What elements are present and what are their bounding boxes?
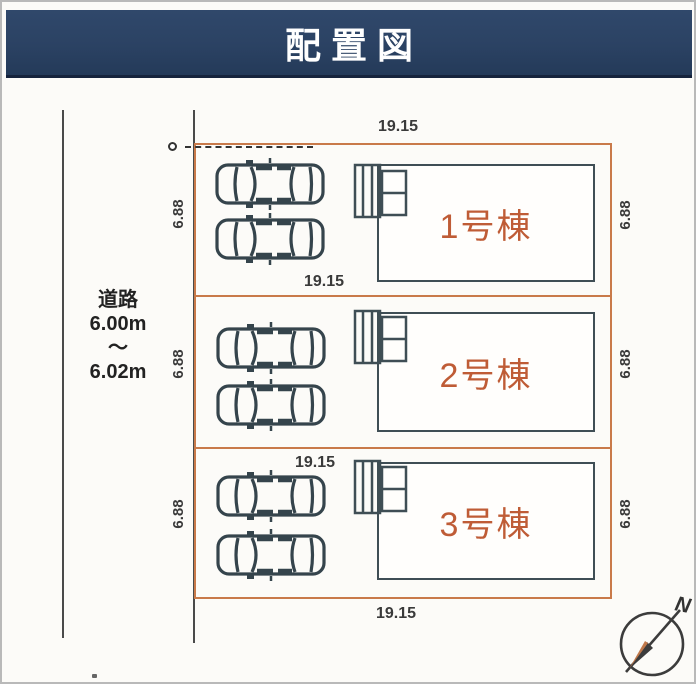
- dimension-lot2-depth-right: 6.88: [617, 341, 635, 387]
- dimension-mid-width: 19.15: [290, 273, 358, 291]
- dimension-lot3-width: 19.15: [281, 454, 349, 472]
- dimension-bottom-width: 19.15: [362, 605, 430, 623]
- entrance-porch-icon: [353, 459, 409, 517]
- car-icon: [215, 322, 327, 374]
- page-title: 配置図: [275, 17, 423, 69]
- building-3: 3号棟: [377, 462, 595, 580]
- dimension-lot2-depth-left: 6.88: [170, 341, 188, 387]
- dimension-lot3-depth-right: 6.88: [617, 491, 635, 537]
- road-width-min: 6.00m: [72, 312, 164, 336]
- compass-north-icon: N: [612, 596, 696, 682]
- car-icon: [215, 470, 327, 522]
- survey-tie-dashed-line: [185, 146, 313, 148]
- site-plan: 配置図 道路 6.00m 〜 6.02m 1号棟 2号棟 3号棟: [0, 0, 696, 684]
- building-1-label: 1号棟: [440, 199, 533, 248]
- car-icon: [215, 379, 327, 431]
- lot2-lot3-boundary: [194, 447, 612, 449]
- building-2-label: 2号棟: [440, 348, 533, 397]
- car-icon: [215, 529, 327, 581]
- dimension-lot3-depth-left: 6.88: [170, 491, 188, 537]
- car-icon: [214, 213, 326, 265]
- road-west-boundary-line: [62, 110, 64, 638]
- compass-north-label: N: [673, 596, 693, 618]
- dimension-lot1-depth-left: 6.88: [170, 191, 188, 237]
- road-width-label: 道路 6.00m 〜 6.02m: [72, 288, 164, 384]
- car-icon: [214, 158, 326, 210]
- entrance-porch-icon: [353, 309, 409, 367]
- building-3-label: 3号棟: [440, 497, 533, 546]
- title-bar: 配置図: [6, 10, 692, 78]
- survey-marker-icon: [168, 142, 177, 151]
- lot1-lot2-boundary: [194, 295, 612, 297]
- dimension-top-width: 19.15: [364, 118, 432, 136]
- road-name: 道路: [72, 288, 164, 312]
- building-2: 2号棟: [377, 312, 595, 432]
- entrance-porch-icon: [353, 163, 409, 221]
- dimension-lot1-depth-right: 6.88: [617, 192, 635, 238]
- building-1: 1号棟: [377, 164, 595, 282]
- road-width-tilde: 〜: [72, 336, 164, 360]
- road-width-max: 6.02m: [72, 360, 164, 384]
- stray-mark: [92, 674, 97, 678]
